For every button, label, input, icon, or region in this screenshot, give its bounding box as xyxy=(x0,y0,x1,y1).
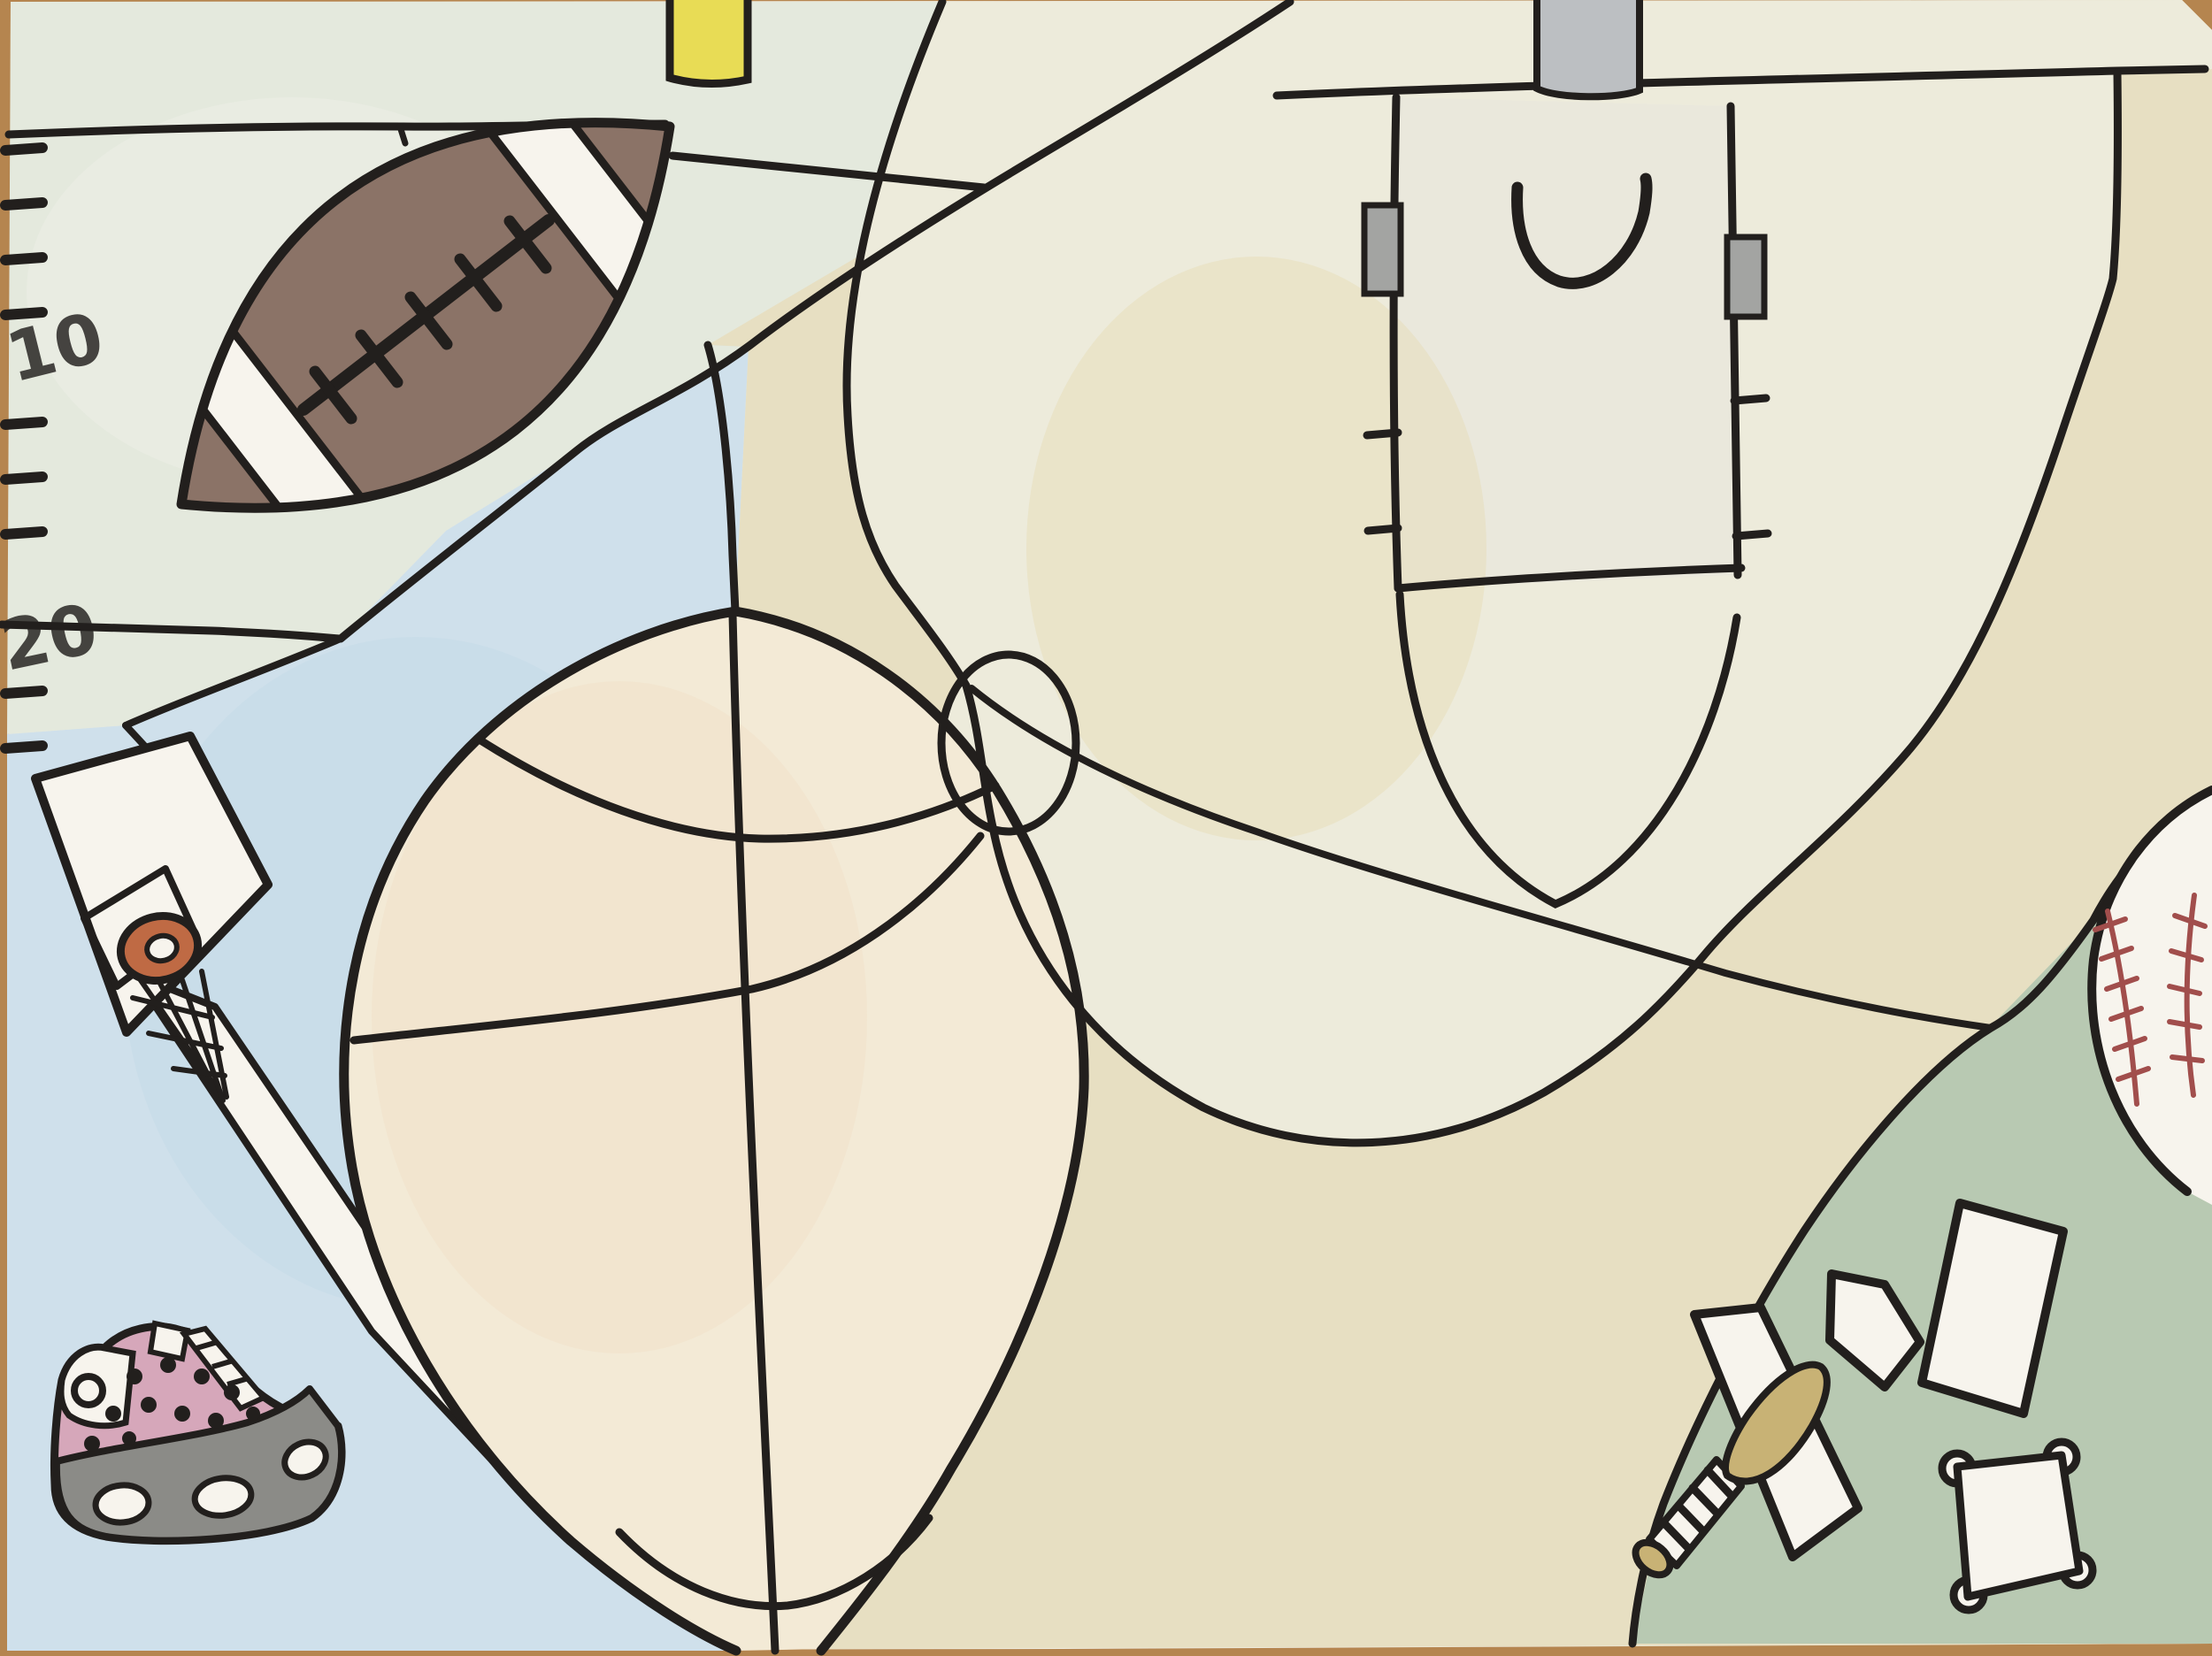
lane-line-left xyxy=(1394,97,1398,588)
basket-pole-top-view xyxy=(1537,0,1640,96)
goal-post xyxy=(670,0,748,84)
playground-drawing: 10 20 xyxy=(0,0,2212,1656)
lane-tick xyxy=(1367,433,1398,435)
lane-block-right xyxy=(1727,237,1764,317)
base-pad xyxy=(1942,1442,2093,1610)
crayon-tint-khaki xyxy=(1026,257,1486,840)
basketball-tint xyxy=(372,681,867,1353)
sneaker-collar-tab xyxy=(150,1323,188,1359)
lane-block-left xyxy=(1364,205,1401,294)
lane-tick xyxy=(1368,528,1398,531)
sole-tread-oval xyxy=(94,1483,150,1524)
lane-tick xyxy=(1736,533,1768,536)
base-pad-body xyxy=(1957,1455,2079,1597)
sneaker-ankle-logo xyxy=(74,1376,103,1405)
lane-tick xyxy=(1734,398,1766,401)
drawing-photo: 10 20 xyxy=(0,0,2212,1656)
